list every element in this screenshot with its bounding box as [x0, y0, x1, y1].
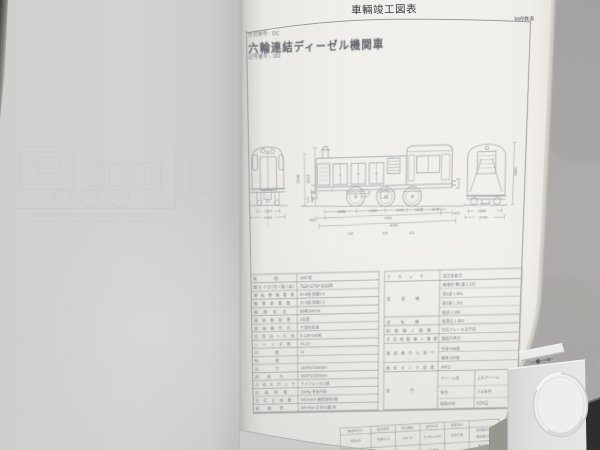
svg-text:変速機形式: 変速機形式 [254, 324, 291, 331]
svg-text:クリーム色: クリーム色 [441, 375, 461, 382]
svg-text:性能: 性能 [255, 357, 280, 364]
svg-text:空車 880粍: 空車 880粍 [441, 345, 461, 352]
svg-text:逆転機: 逆転機 [387, 318, 420, 325]
svg-text:塗色: 塗色 [386, 387, 415, 393]
svg-text:160PS/1500rpm: 160PS/1500rpm [301, 373, 328, 378]
svg-text:10t: 10t [348, 231, 354, 236]
svg-text:積車 860粍: 積車 860粍 [441, 354, 461, 361]
svg-text:届出第12号: 届出第12号 [476, 433, 492, 438]
svg-text:10t: 10t [409, 230, 415, 235]
svg-text:製造年月日: 製造年月日 [348, 428, 363, 433]
svg-text:7520: 7520 [384, 215, 393, 220]
svg-text:踏面片押式: 踏面片押式 [441, 335, 461, 342]
svg-text:3050: 3050 [513, 166, 518, 176]
svg-text:クラッチ: クラッチ [387, 274, 424, 281]
svg-text:変速機: 変速機 [387, 295, 420, 302]
svg-text:手用制動機ノ種類: 手用制動機ノ種類 [386, 335, 438, 343]
svg-text:千鳥形変速: 千鳥形変速 [300, 324, 320, 331]
svg-text:機関車重量: 機関車重量 [254, 300, 291, 307]
svg-text:制動管: 制動管 [256, 405, 284, 412]
svg-text:設計認可: 設計認可 [377, 426, 390, 431]
svg-text:20.8瓲 換算2.0: 20.8瓲 換算2.0 [300, 299, 326, 306]
svg-text:400: 400 [454, 210, 461, 215]
svg-text:軌間: 軌間 [253, 275, 278, 282]
svg-text:第3速 1.100: 第3速 1.100 [442, 300, 463, 307]
svg-text:竣功届出: 竣功届出 [401, 425, 414, 430]
svg-text:200kg 車体内装: 200kg 車体内装 [301, 388, 328, 395]
svg-text:気筒径×行程: 気筒径×行程 [254, 332, 295, 339]
svg-text:10t: 10t [382, 230, 388, 235]
svg-text:2615: 2615 [306, 174, 311, 184]
svg-text:認可年月: 認可年月 [426, 424, 438, 429]
svg-text:下半朱色: 下半朱色 [477, 388, 493, 395]
svg-text:7520×2740×3050粍: 7520×2740×3050粍 [300, 282, 334, 289]
svg-text:制動機ノ種類: 制動機ノ種類 [386, 327, 431, 335]
svg-text:回転力: 回転力 [255, 373, 283, 380]
svg-text:連結軸配置: 連結軸配置 [254, 316, 290, 323]
svg-text:砂箱容量: 砂箱容量 [255, 389, 287, 396]
svg-text:歯車比 第1速 2.285: 歯車比 第1速 2.285 [443, 281, 477, 288]
svg-text:空気圧縮機: 空気圧縮機 [255, 397, 292, 404]
svg-text:サイフォン式 2基: サイフォン式 2基 [301, 380, 331, 387]
svg-text:1145: 1145 [432, 207, 441, 212]
svg-text:1067: 1067 [264, 208, 273, 213]
svg-text:1500: 1500 [264, 215, 273, 220]
svg-text:シリンダ数: シリンダ数 [254, 341, 291, 348]
svg-text:最大寸法(長×幅×高): 最大寸法(長×幅×高) [253, 283, 294, 291]
svg-text:1067粍: 1067粍 [300, 274, 313, 281]
svg-text:1930: 1930 [369, 208, 378, 213]
svg-text:上半クリーム: 上半クリーム [477, 374, 500, 381]
svg-text:880: 880 [310, 197, 314, 202]
svg-text:落成月日: 落成月日 [450, 422, 462, 427]
svg-text:口数: 口数 [255, 349, 280, 356]
svg-text:機関形式: 機関形式 [254, 308, 287, 315]
svg-text:3048: 3048 [296, 174, 301, 184]
svg-text:1140: 1140 [306, 196, 310, 203]
svg-text:400: 400 [309, 217, 316, 222]
svg-text:振興DMH36: 振興DMH36 [300, 307, 321, 314]
svg-text:昭和33年: 昭和33年 [440, 400, 456, 407]
svg-text:後退 1.158: 後退 1.158 [442, 309, 461, 316]
svg-text:車両設計: 車両設計 [478, 443, 491, 448]
svg-text:400立: 400立 [441, 363, 451, 369]
svg-text:WV×HAF 機関直結2基: WV×HAF 機関直結2基 [301, 396, 339, 403]
svg-text:WV×6se 正刻九磨1台: WV×6se 正刻九磨1台 [301, 404, 337, 411]
svg-text:湿式多板式: 湿式多板式 [443, 272, 463, 279]
svg-text:2085: 2085 [338, 209, 347, 214]
svg-text:連結器中心高サ: 連結器中心高サ [386, 349, 434, 357]
svg-text:20.8瓲 換算2.0: 20.8瓲 換算2.0 [300, 291, 326, 298]
svg-text:6000: 6000 [390, 222, 399, 227]
svg-text:昭和31.6: 昭和31.6 [377, 436, 389, 441]
svg-text:歯車比 1.582: 歯車比 1.582 [442, 317, 465, 324]
svg-text:160PS/1500rpm: 160PS/1500rpm [300, 365, 327, 370]
svg-text:1100: 1100 [415, 207, 424, 212]
svg-text:燃料タンク容量: 燃料タンク容量 [386, 364, 434, 371]
svg-text:改造工事: 改造工事 [451, 432, 464, 437]
svg-text:認可第45号: 認可第45号 [476, 427, 492, 432]
svg-text:冷却水ポンプ: 冷却水ポンプ [255, 381, 296, 388]
svg-text:運転整備重量: 運転整備重量 [254, 291, 295, 299]
svg-text:昭和9年: 昭和9年 [350, 438, 361, 443]
svg-text:2740: 2740 [479, 215, 488, 220]
svg-text:12: 12 [300, 349, 305, 354]
svg-text:46-14: 46-14 [300, 341, 310, 346]
svg-text:出力: 出力 [255, 365, 279, 372]
svg-text:31-981-2045: 31-981-2045 [424, 434, 442, 439]
svg-text:2気筒: 2気筒 [300, 316, 310, 323]
svg-text:6月5日: 6月5日 [476, 400, 488, 406]
svg-text:1930: 1930 [396, 208, 405, 213]
svg-text:S31.10: S31.10 [403, 436, 413, 440]
svg-text:空気ブレーキ及手用: 空気ブレーキ及手用 [442, 326, 476, 333]
svg-text:2600: 2600 [478, 208, 487, 213]
svg-text:朱色: 朱色 [440, 389, 448, 396]
svg-text:第2速 1.551: 第2速 1.551 [442, 290, 463, 297]
svg-text:0.130×160粍: 0.130×160粍 [300, 332, 322, 339]
